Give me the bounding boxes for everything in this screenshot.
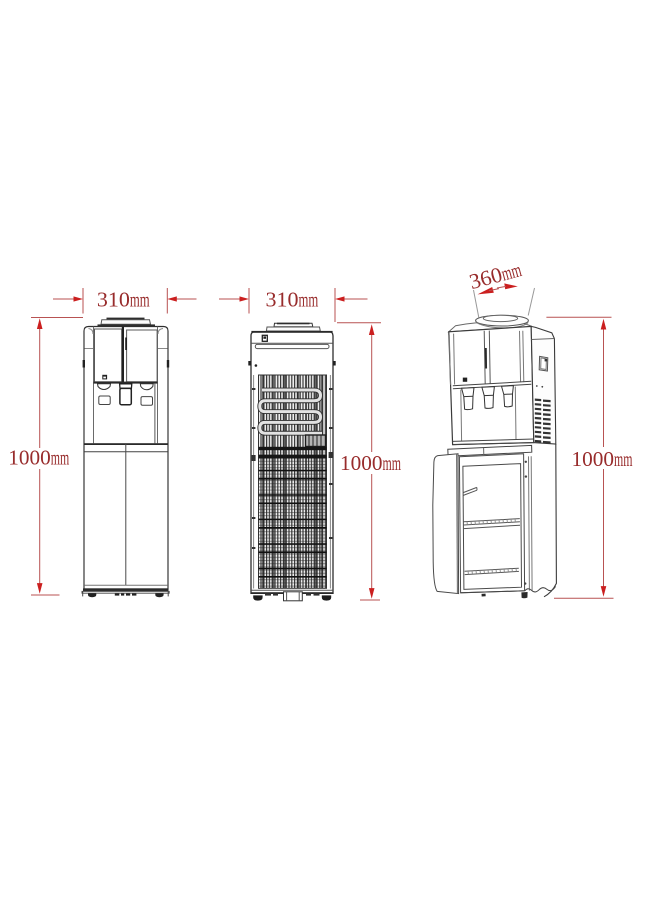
svg-text:310mm: 310mm <box>266 288 319 312</box>
svg-text:1000mm: 1000mm <box>8 446 69 470</box>
svg-text:1000mm: 1000mm <box>340 451 401 475</box>
svg-text:360mm: 360mm <box>467 257 524 294</box>
svg-text:1000mm: 1000mm <box>572 447 633 471</box>
svg-text:310mm: 310mm <box>97 288 150 312</box>
